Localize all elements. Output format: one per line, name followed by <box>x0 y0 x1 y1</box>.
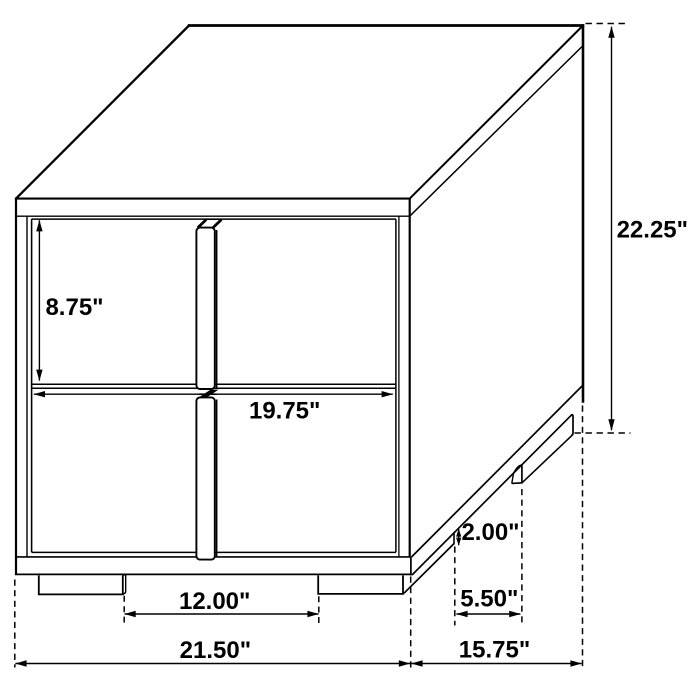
svg-text:5.50": 5.50" <box>460 585 518 612</box>
svg-text:8.75": 8.75" <box>45 294 103 321</box>
svg-text:2.00": 2.00" <box>461 519 519 546</box>
svg-text:19.75": 19.75" <box>249 397 320 424</box>
svg-text:12.00": 12.00" <box>179 588 250 615</box>
svg-text:15.75": 15.75" <box>459 637 530 664</box>
svg-text:21.50": 21.50" <box>180 637 251 664</box>
svg-text:22.25": 22.25" <box>617 217 688 244</box>
